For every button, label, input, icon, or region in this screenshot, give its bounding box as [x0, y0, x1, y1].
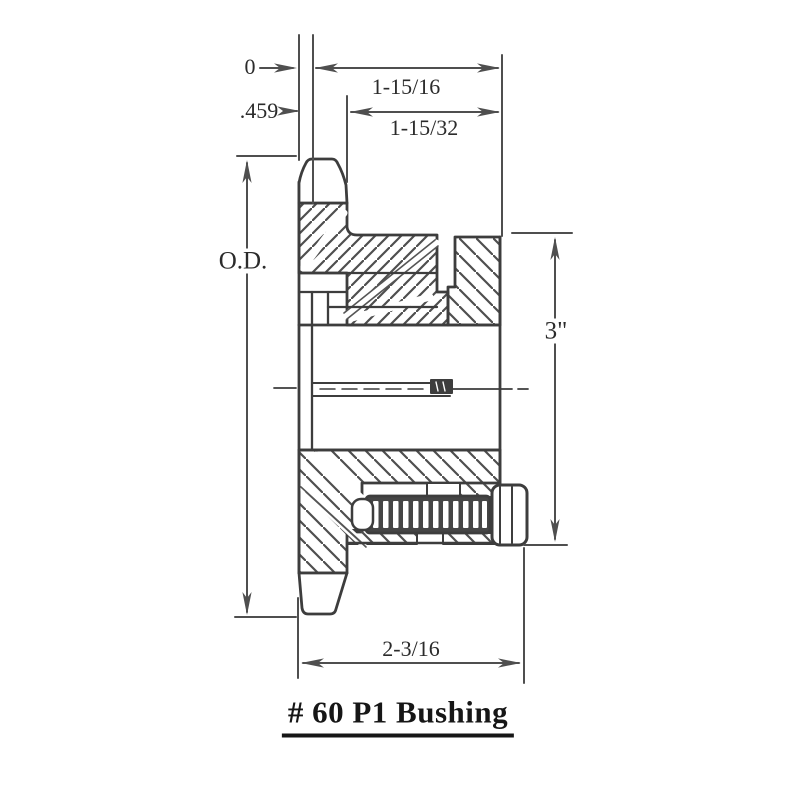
screw-tip	[352, 499, 373, 530]
drawing-title: # 60 P1 Bushing	[282, 695, 514, 738]
tooth-width-label: .459	[240, 100, 279, 122]
dimension-arrowheads	[242, 63, 559, 667]
engineering-drawing-page: 0 .459 1-15/16 1-15/32 O.D. 3" 2-3/16 # …	[0, 0, 800, 800]
datum-zero-label: 0	[245, 56, 256, 78]
overall-bushing-length-label: 1-15/16	[372, 76, 440, 98]
tooth-top	[299, 159, 347, 203]
bushing-flange-upper	[448, 237, 500, 325]
overall-width-label: 2-3/16	[379, 638, 442, 660]
screw-hex-head	[492, 485, 527, 545]
tooth-bottom	[299, 573, 347, 614]
hub-length-label: 1-15/32	[390, 117, 458, 139]
flange-diameter-label: 3"	[542, 319, 571, 344]
bushing-split-detail	[312, 380, 452, 396]
outside-diameter-label: O.D.	[216, 249, 271, 274]
